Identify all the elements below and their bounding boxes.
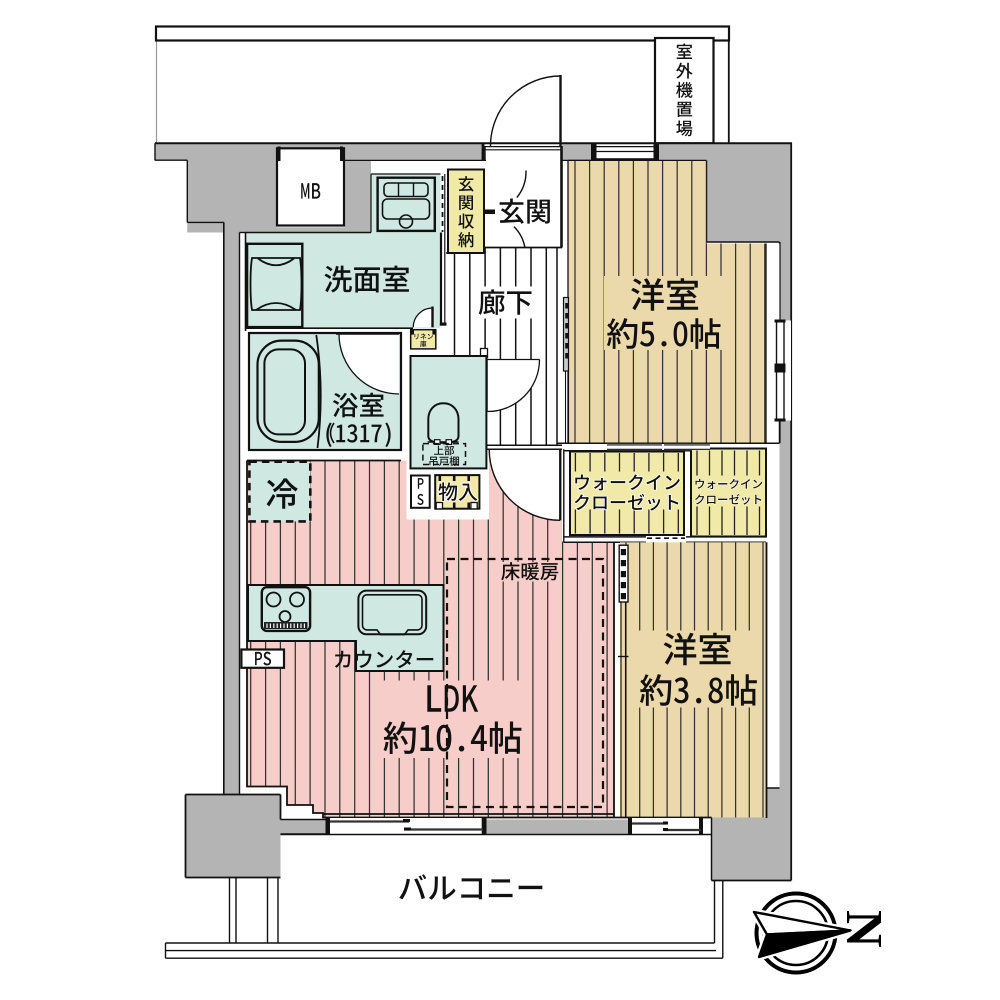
svg-text:N: N xyxy=(835,910,892,948)
